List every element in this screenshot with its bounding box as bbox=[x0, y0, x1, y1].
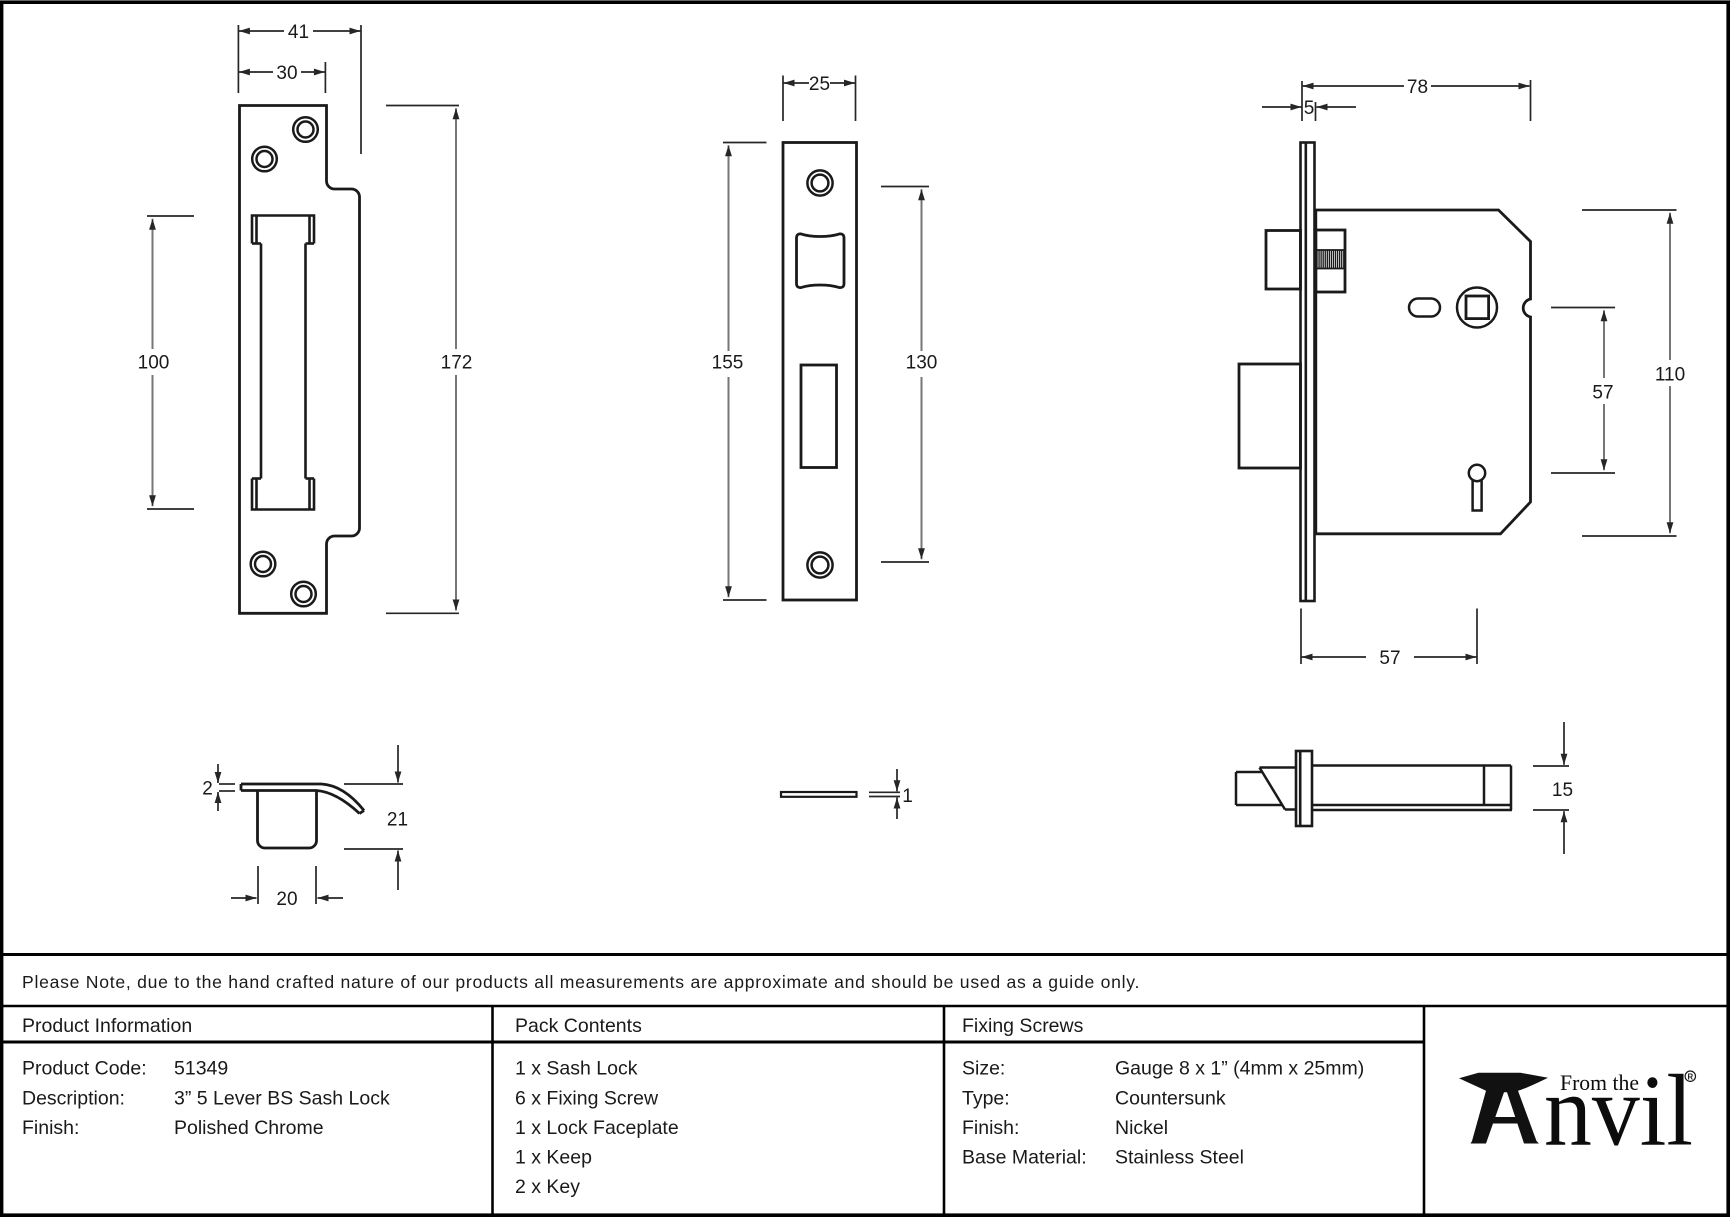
svg-text:Countersunk: Countersunk bbox=[1115, 1087, 1226, 1109]
svg-text:2 x Key: 2 x Key bbox=[515, 1176, 580, 1198]
svg-text:1 x Lock Faceplate: 1 x Lock Faceplate bbox=[515, 1117, 679, 1139]
svg-text:Finish:: Finish: bbox=[22, 1117, 79, 1139]
svg-text:Product Code:: Product Code: bbox=[22, 1058, 147, 1080]
svg-text:nvil: nvil bbox=[1544, 1055, 1693, 1168]
svg-text:110: 110 bbox=[1655, 364, 1685, 385]
svg-text:57: 57 bbox=[1592, 382, 1613, 403]
svg-text:Nickel: Nickel bbox=[1115, 1117, 1168, 1139]
svg-text:Finish:: Finish: bbox=[962, 1117, 1019, 1139]
svg-text:Description:: Description: bbox=[22, 1087, 125, 1109]
svg-text:Fixing Screws: Fixing Screws bbox=[962, 1015, 1084, 1037]
svg-text:78: 78 bbox=[1407, 77, 1428, 98]
svg-text:Gauge 8 x 1” (4mm x 25mm): Gauge 8 x 1” (4mm x 25mm) bbox=[1115, 1058, 1364, 1080]
svg-text:30: 30 bbox=[276, 63, 297, 84]
svg-text:Pack Contents: Pack Contents bbox=[515, 1015, 642, 1037]
svg-text:41: 41 bbox=[288, 22, 309, 43]
svg-text:5: 5 bbox=[1304, 98, 1315, 119]
svg-text:Stainless Steel: Stainless Steel bbox=[1115, 1147, 1244, 1169]
svg-text:Base Material:: Base Material: bbox=[962, 1147, 1087, 1169]
svg-text:Polished Chrome: Polished Chrome bbox=[174, 1117, 324, 1139]
svg-text:2: 2 bbox=[202, 778, 213, 799]
svg-text:25: 25 bbox=[809, 74, 830, 95]
svg-text:Please Note, due to the hand c: Please Note, due to the hand crafted nat… bbox=[22, 972, 1140, 992]
svg-text:1 x Keep: 1 x Keep bbox=[515, 1147, 592, 1169]
svg-text:3” 5 Lever BS Sash Lock: 3” 5 Lever BS Sash Lock bbox=[174, 1087, 390, 1109]
svg-text:57: 57 bbox=[1379, 648, 1400, 669]
svg-text:172: 172 bbox=[441, 352, 473, 373]
svg-text:21: 21 bbox=[387, 810, 408, 831]
svg-text:155: 155 bbox=[712, 352, 744, 373]
svg-text:R: R bbox=[1687, 1072, 1693, 1081]
svg-text:Product Information: Product Information bbox=[22, 1015, 192, 1037]
svg-text:1 x Sash Lock: 1 x Sash Lock bbox=[515, 1058, 638, 1080]
svg-text:15: 15 bbox=[1552, 780, 1573, 801]
svg-text:20: 20 bbox=[276, 889, 297, 910]
svg-text:100: 100 bbox=[138, 352, 170, 373]
svg-text:1: 1 bbox=[902, 786, 913, 807]
svg-text:6 x Fixing Screw: 6 x Fixing Screw bbox=[515, 1087, 659, 1109]
svg-text:130: 130 bbox=[906, 352, 938, 373]
svg-text:Type:: Type: bbox=[962, 1087, 1010, 1109]
svg-text:Size:: Size: bbox=[962, 1058, 1005, 1080]
svg-text:51349: 51349 bbox=[174, 1058, 228, 1080]
